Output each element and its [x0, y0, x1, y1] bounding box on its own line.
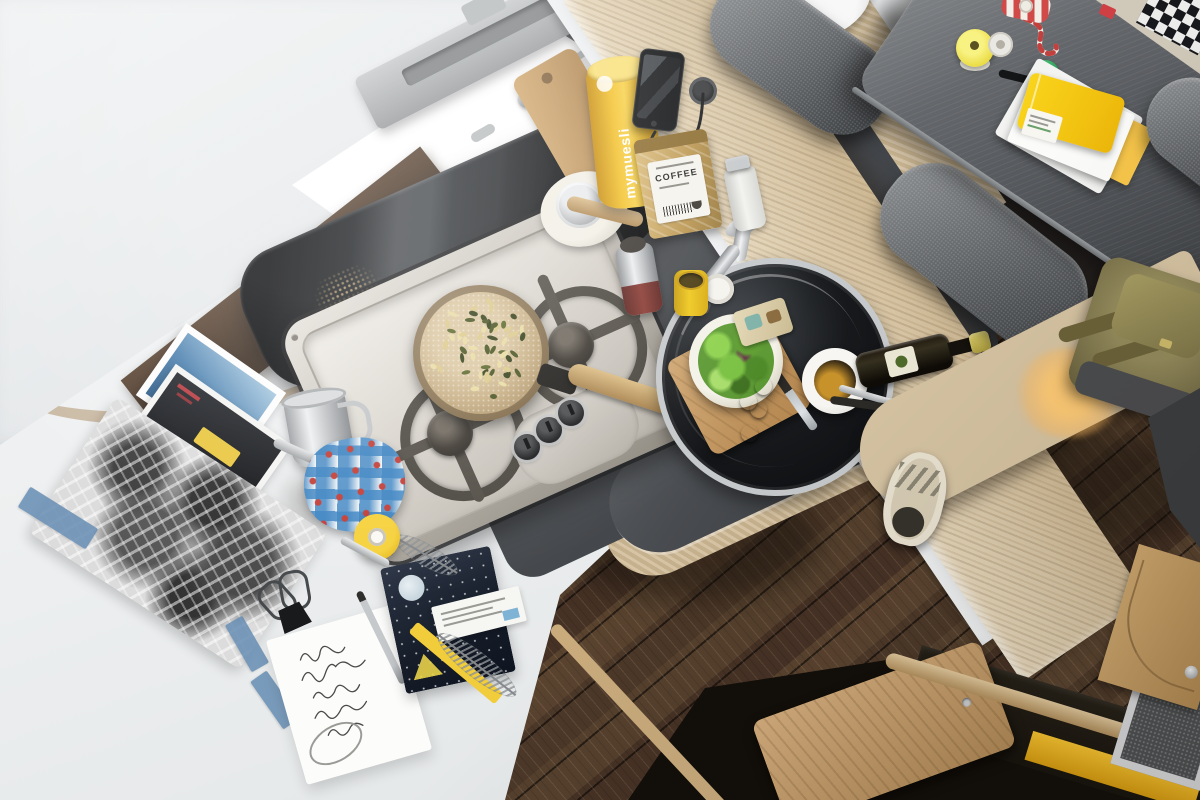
pan-seeds [413, 285, 549, 421]
pan-seed [490, 346, 497, 355]
stove-knob [558, 400, 584, 426]
yellow-jar [674, 270, 708, 316]
pan-seed [470, 386, 480, 392]
pan-seed [478, 370, 482, 379]
stove-screw [290, 333, 299, 342]
pan-seed [469, 353, 475, 362]
packet-art [744, 313, 764, 331]
pan-seed [441, 339, 448, 350]
pan-seed [487, 334, 499, 341]
pan-seed [519, 331, 527, 341]
pan-seed [497, 380, 507, 387]
label-barcode [663, 202, 694, 217]
board-hole [540, 71, 555, 86]
pan-seed [465, 318, 475, 322]
jar-dot [970, 41, 979, 50]
pan-seed [500, 336, 508, 346]
label-emblem [894, 354, 909, 369]
pan-seed [490, 394, 498, 400]
bag-label: COFFEE [647, 154, 711, 224]
blue-chip [502, 607, 520, 621]
pan-seed [484, 344, 491, 355]
moon-graphic [396, 572, 427, 603]
cherry-tomato [755, 378, 772, 395]
pan-seed [469, 310, 479, 317]
cherry-tomato [750, 401, 767, 418]
pan-seed [481, 365, 491, 370]
pan-seed [461, 369, 471, 375]
pan-seed [514, 368, 522, 378]
pan-seed [476, 332, 483, 341]
frying-pan [413, 285, 549, 421]
pan-seed [448, 332, 456, 342]
pan-seed [445, 319, 449, 329]
burner-cap [548, 322, 594, 368]
pan-seed [436, 364, 444, 375]
packet-art [765, 309, 782, 325]
pan-seed [501, 320, 506, 328]
pan-seed [489, 302, 495, 313]
label-line [659, 182, 689, 189]
roll-hole [368, 528, 386, 546]
pan-seed [468, 346, 478, 351]
camper-kitchen-photo: mymuesli COFFEE [0, 0, 1200, 800]
step-screw [961, 697, 973, 709]
jar-opening [679, 273, 703, 288]
stove-knob [514, 434, 540, 460]
spool-core [1018, 0, 1035, 14]
pan-seed [509, 313, 518, 322]
pan-seed [447, 310, 458, 318]
cherry-tomato [741, 425, 758, 442]
pan-seed [462, 336, 467, 344]
